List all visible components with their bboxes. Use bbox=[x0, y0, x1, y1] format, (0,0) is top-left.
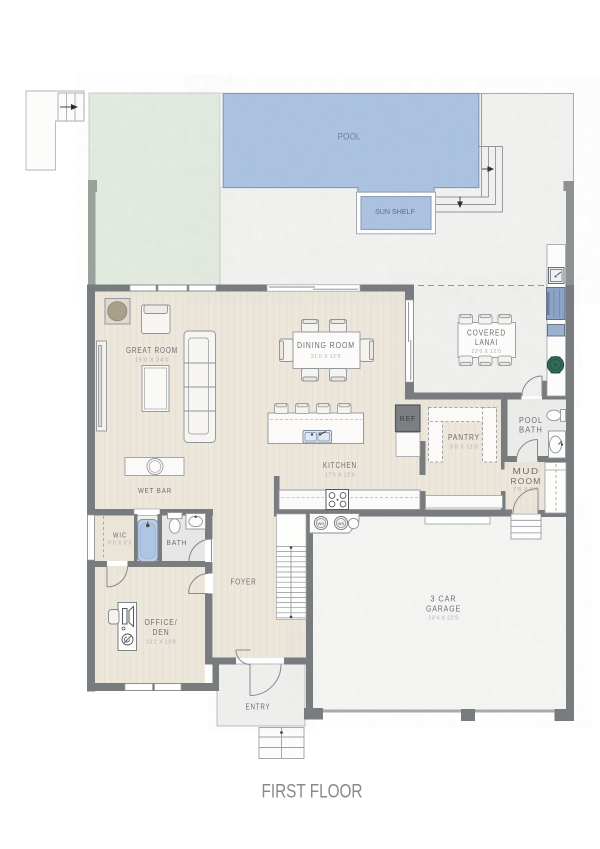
svg-text:COVERED: COVERED bbox=[467, 328, 506, 338]
svg-text:WET BAR: WET BAR bbox=[138, 486, 172, 495]
svg-text:WH: WH bbox=[318, 521, 325, 526]
svg-text:17'0 X 12'0: 17'0 X 12'0 bbox=[325, 473, 355, 479]
svg-text:23'4 X 22'8: 23'4 X 22'8 bbox=[429, 616, 459, 622]
svg-text:7'6 X 5'6: 7'6 X 5'6 bbox=[513, 487, 539, 493]
svg-text:15'0 X 24'0: 15'0 X 24'0 bbox=[135, 358, 169, 364]
svg-text:OFFICE/: OFFICE/ bbox=[145, 617, 178, 627]
svg-text:POOL: POOL bbox=[338, 132, 361, 142]
svg-text:8'8 X 12'0: 8'8 X 12'0 bbox=[450, 445, 478, 451]
svg-text:PANTRY: PANTRY bbox=[448, 433, 480, 442]
svg-text:WS: WS bbox=[338, 521, 345, 526]
svg-text:KITCHEN: KITCHEN bbox=[323, 460, 357, 470]
svg-text:MUD: MUD bbox=[513, 467, 540, 476]
svg-text:BATH: BATH bbox=[167, 538, 188, 547]
svg-text:FOYER: FOYER bbox=[231, 577, 257, 587]
svg-text:REF: REF bbox=[400, 416, 416, 423]
svg-text:BATH: BATH bbox=[519, 426, 543, 435]
svg-text:3 CAR: 3 CAR bbox=[431, 594, 457, 604]
svg-text:21'0 X 12'0: 21'0 X 12'0 bbox=[311, 354, 341, 360]
svg-text:DINING ROOM: DINING ROOM bbox=[297, 340, 355, 350]
svg-text:13'2 X 13'8: 13'2 X 13'8 bbox=[146, 640, 176, 646]
svg-text:23'0 X 12'0: 23'0 X 12'0 bbox=[472, 349, 502, 355]
svg-text:LANAI: LANAI bbox=[475, 337, 498, 347]
svg-text:FIRST FLOOR: FIRST FLOOR bbox=[262, 781, 363, 803]
svg-text:ROOM: ROOM bbox=[511, 477, 542, 486]
svg-text:POOL: POOL bbox=[519, 416, 543, 425]
svg-text:WIC: WIC bbox=[113, 533, 127, 540]
svg-text:6'0 X 6'6: 6'0 X 6'6 bbox=[108, 541, 132, 547]
svg-text:GARAGE: GARAGE bbox=[426, 604, 461, 614]
svg-text:GREAT ROOM: GREAT ROOM bbox=[126, 345, 178, 355]
svg-text:ENTRY: ENTRY bbox=[246, 702, 271, 712]
svg-text:SUN SHELF: SUN SHELF bbox=[375, 207, 415, 216]
svg-text:DEN: DEN bbox=[153, 627, 170, 637]
